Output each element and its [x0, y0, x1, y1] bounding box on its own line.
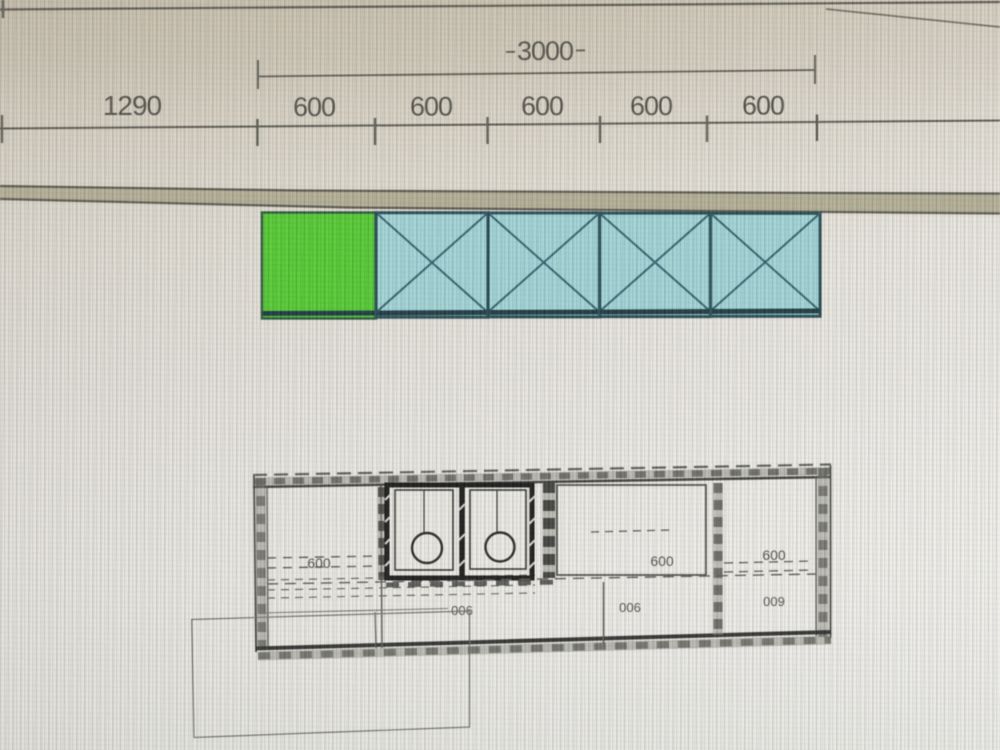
svg-text:600: 600	[293, 92, 335, 122]
svg-text:009: 009	[763, 594, 785, 609]
svg-text:1290: 1290	[103, 90, 162, 121]
svg-text:3000: 3000	[517, 36, 573, 66]
svg-text:600: 600	[630, 91, 672, 121]
svg-text:600: 600	[307, 555, 331, 571]
svg-text:600: 600	[762, 547, 786, 563]
svg-text:600: 600	[410, 92, 452, 122]
svg-text:006: 006	[619, 600, 641, 615]
svg-text:600: 600	[742, 91, 784, 121]
svg-text:600: 600	[650, 553, 674, 569]
svg-text:600: 600	[521, 91, 563, 121]
